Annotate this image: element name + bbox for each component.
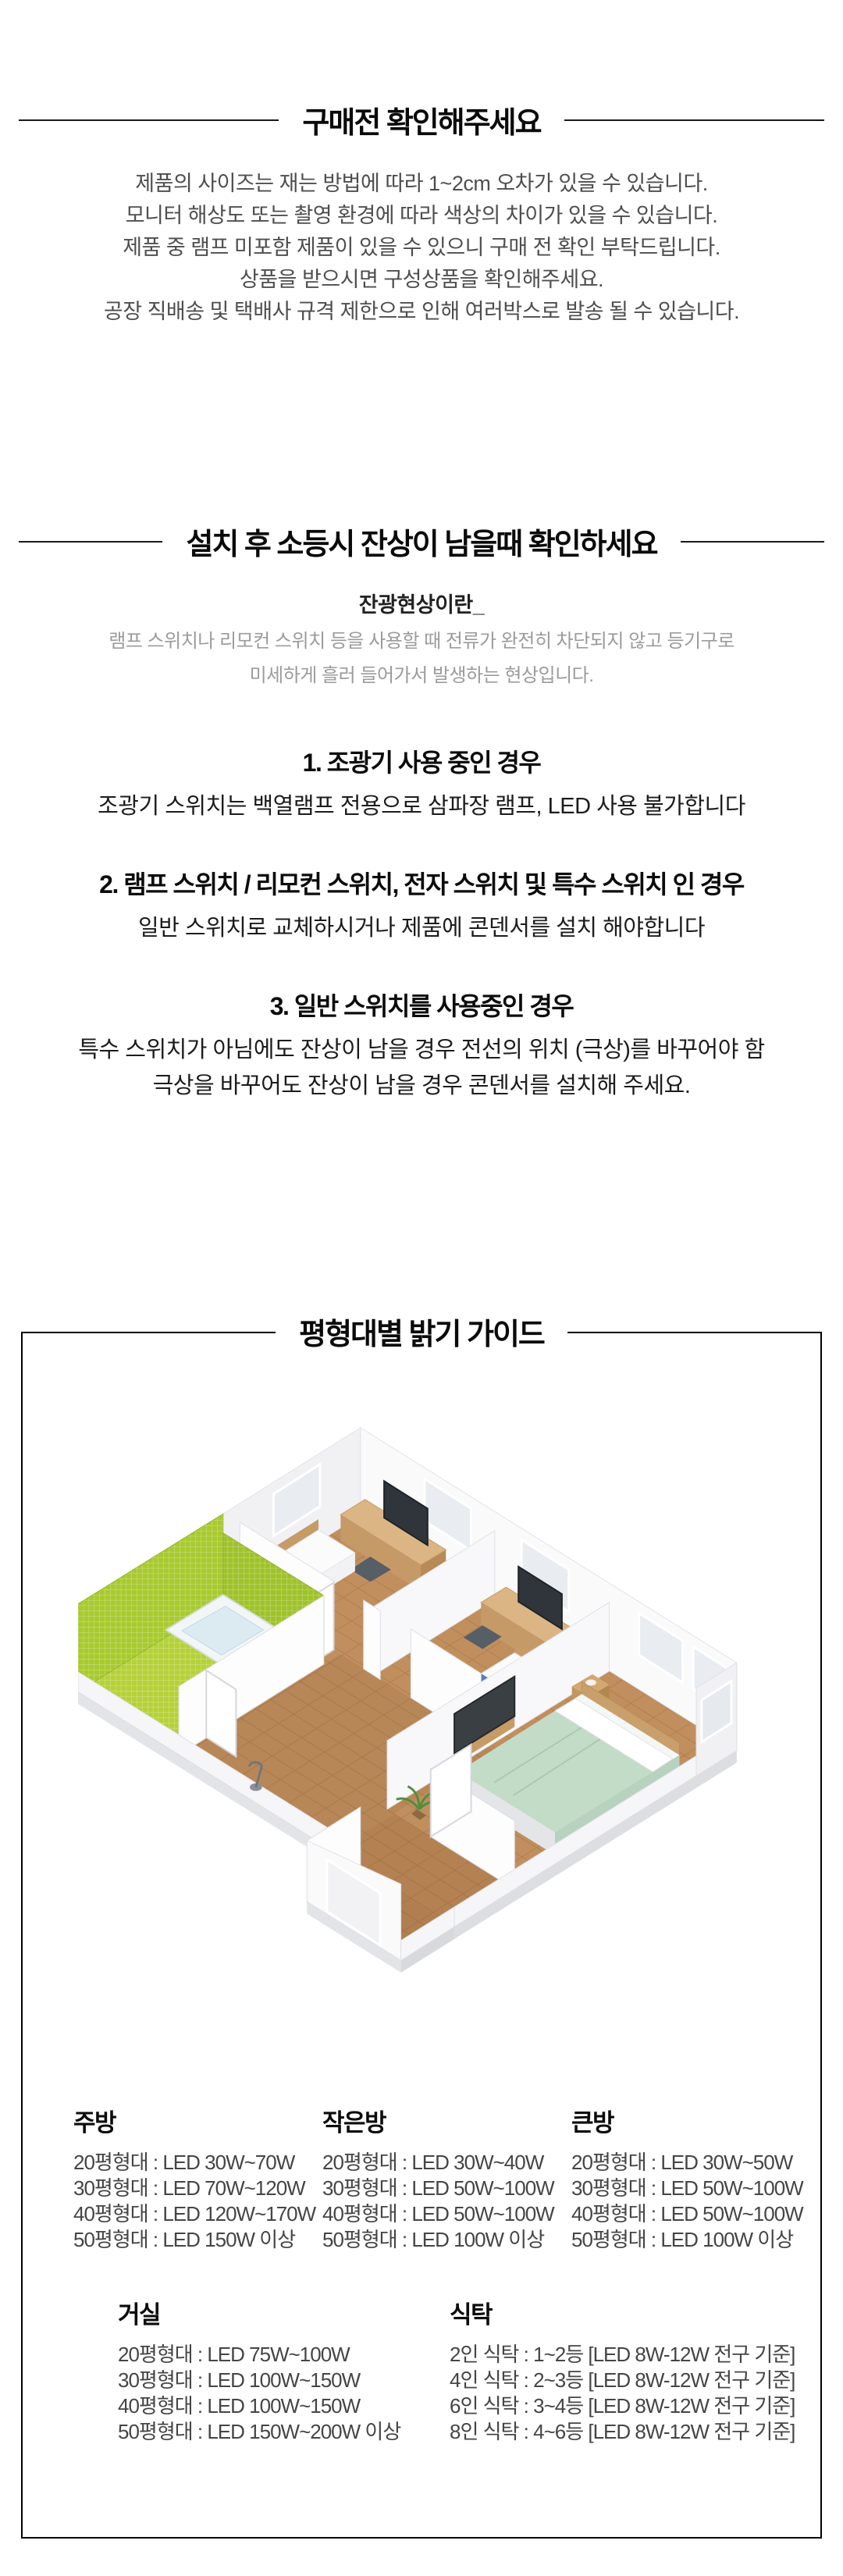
precheck-note-line: 모니터 해상도 또는 촬영 환경에 따라 색상의 차이가 있을 수 있습니다. [0, 200, 843, 232]
guide-tables-row2: 거실 20평형대 : LED 75W~100W 30평형대 : LED 100W… [23, 2295, 820, 2445]
guide-row: 2인 식탁 : 1~2등 [LED 8W-12W 전구 기준] [450, 2342, 820, 2368]
guide-col-big-room: 큰방 20평형대 : LED 30W~50W 30평형대 : LED 50W~1… [571, 2103, 820, 2253]
afterglow-desc-line: 램프 스위치나 리모컨 스위치 등을 사용할 때 전류가 완전히 차단되지 않고… [0, 624, 843, 659]
case-normal-switch: 3. 일반 스위치를 사용중인 경우 특수 스위치가 아님에도 잔상이 남을 경… [0, 987, 843, 1104]
afterglow-subtitle: 잔광현상이란_ [0, 588, 843, 618]
guide-row: 40평형대 : LED 120W~170W [73, 2201, 322, 2227]
case-dimmer: 1. 조광기 사용 중인 경우 조광기 스위치는 백열램프 전용으로 삼파장 램… [0, 743, 843, 824]
guide-col-kitchen: 주방 20평형대 : LED 30W~70W 30평형대 : LED 70W~1… [73, 2103, 322, 2253]
guide-col-header: 주방 [73, 2103, 322, 2138]
guide-row: 50평형대 : LED 100W 이상 [571, 2227, 820, 2253]
guide-col-small-room: 작은방 20평형대 : LED 30W~40W 30평형대 : LED 50W~… [322, 2103, 571, 2253]
precheck-notes: 제품의 사이즈는 재는 방법에 따라 1~2cm 오차가 있을 수 있습니다. … [0, 168, 843, 328]
divider-line-left [19, 119, 279, 121]
guide-row: 4인 식탁 : 2~3등 [LED 8W-12W 전구 기준] [450, 2368, 820, 2393]
guide-row: 50평형대 : LED 150W 이상 [73, 2227, 322, 2253]
guide-row: 30평형대 : LED 50W~100W [322, 2176, 571, 2201]
floorplan-illustration [78, 1424, 765, 1989]
guide-col-header: 큰방 [571, 2103, 820, 2138]
precheck-title: 구매전 확인해주세요 [302, 98, 540, 141]
precheck-note-line: 제품 중 램프 미포함 제품이 있을 수 있으니 구매 전 확인 부탁드립니다. [0, 232, 843, 264]
case-body: 조광기 스위치는 백열램프 전용으로 삼파장 램프, LED 사용 불가합니다 [0, 788, 843, 824]
guide-row: 50평형대 : LED 100W 이상 [322, 2227, 571, 2253]
guide-row: 20평형대 : LED 75W~100W [118, 2342, 450, 2368]
afterglow-description: 램프 스위치나 리모컨 스위치 등을 사용할 때 전류가 완전히 차단되지 않고… [0, 624, 843, 693]
product-info-page: 구매전 확인해주세요 제품의 사이즈는 재는 방법에 따라 1~2cm 오차가 … [0, 0, 843, 2576]
case-heading: 1. 조광기 사용 중인 경우 [0, 743, 843, 779]
guide-row: 30평형대 : LED 100W~150W [118, 2368, 450, 2393]
case-body: 특수 스위치가 아님에도 잔상이 남을 경우 전선의 위치 (극상)를 바꾸어야… [0, 1032, 843, 1068]
guide-row: 20평형대 : LED 30W~40W [322, 2150, 571, 2176]
guide-row: 40평형대 : LED 50W~100W [322, 2201, 571, 2227]
guide-tables-row1: 주방 20평형대 : LED 30W~70W 30평형대 : LED 70W~1… [23, 2103, 820, 2253]
divider-line-right [564, 119, 824, 121]
guide-row: 40평형대 : LED 50W~100W [571, 2201, 820, 2227]
guide-col-header: 거실 [118, 2295, 450, 2330]
apartment-3d-floorplan [78, 1424, 765, 1989]
divider-line-left [19, 541, 162, 543]
divider-line-right [681, 541, 824, 543]
afterglow-desc-line: 미세하게 흘러 들어가서 발생하는 현상입니다. [0, 659, 843, 693]
precheck-note-line: 상품을 받으시면 구성상품을 확인해주세요. [0, 264, 843, 296]
precheck-note-line: 제품의 사이즈는 재는 방법에 따라 1~2cm 오차가 있을 수 있습니다. [0, 168, 843, 200]
afterglow-title-row: 설치 후 소등시 잔상이 남을때 확인하세요 [19, 520, 824, 563]
case-heading: 3. 일반 스위치를 사용중인 경우 [0, 987, 843, 1023]
guide-col-header: 작은방 [322, 2103, 571, 2138]
case-heading: 2. 램프 스위치 / 리모컨 스위치, 전자 스위치 및 특수 스위치 인 경… [0, 865, 843, 901]
guide-row: 8인 식탁 : 4~6등 [LED 8W-12W 전구 기준] [450, 2419, 820, 2445]
precheck-title-row: 구매전 확인해주세요 [19, 98, 824, 141]
section-afterglow: 설치 후 소등시 잔상이 남을때 확인하세요 잔광현상이란_ 램프 스위치나 리… [0, 520, 843, 1104]
case-body: 극상을 바꾸어도 잔상이 남을 경우 콘덴서를 설치해 주세요. [0, 1068, 843, 1104]
guide-title: 평형대별 밝기 가이드 [276, 1310, 567, 1353]
guide-row: 40평형대 : LED 100W~150W [118, 2393, 450, 2419]
precheck-note-line: 공장 직배송 및 택배사 규격 제한으로 인해 여러박스로 발송 될 수 있습니… [0, 296, 843, 328]
guide-col-dining-table: 식탁 2인 식탁 : 1~2등 [LED 8W-12W 전구 기준] 4인 식탁… [450, 2295, 820, 2445]
guide-row: 30평형대 : LED 50W~100W [571, 2176, 820, 2201]
case-body: 일반 스위치로 교체하시거나 제품에 콘덴서를 설치 해야합니다 [0, 910, 843, 946]
section-precheck: 구매전 확인해주세요 제품의 사이즈는 재는 방법에 따라 1~2cm 오차가 … [0, 0, 843, 328]
guide-row: 6인 식탁 : 3~4등 [LED 8W-12W 전구 기준] [450, 2393, 820, 2419]
guide-row: 30평형대 : LED 70W~120W [73, 2176, 322, 2201]
case-special-switch: 2. 램프 스위치 / 리모컨 스위치, 전자 스위치 및 특수 스위치 인 경… [0, 865, 843, 946]
guide-row: 50평형대 : LED 150W~200W 이상 [118, 2419, 450, 2445]
brightness-guide-box: 평형대별 밝기 가이드 [21, 1332, 822, 2539]
guide-col-living-room: 거실 20평형대 : LED 75W~100W 30평형대 : LED 100W… [118, 2295, 450, 2445]
guide-col-header: 식탁 [450, 2295, 820, 2330]
afterglow-title: 설치 후 소등시 잔상이 남을때 확인하세요 [186, 520, 656, 563]
guide-row: 20평형대 : LED 30W~70W [73, 2150, 322, 2176]
guide-row: 20평형대 : LED 30W~50W [571, 2150, 820, 2176]
